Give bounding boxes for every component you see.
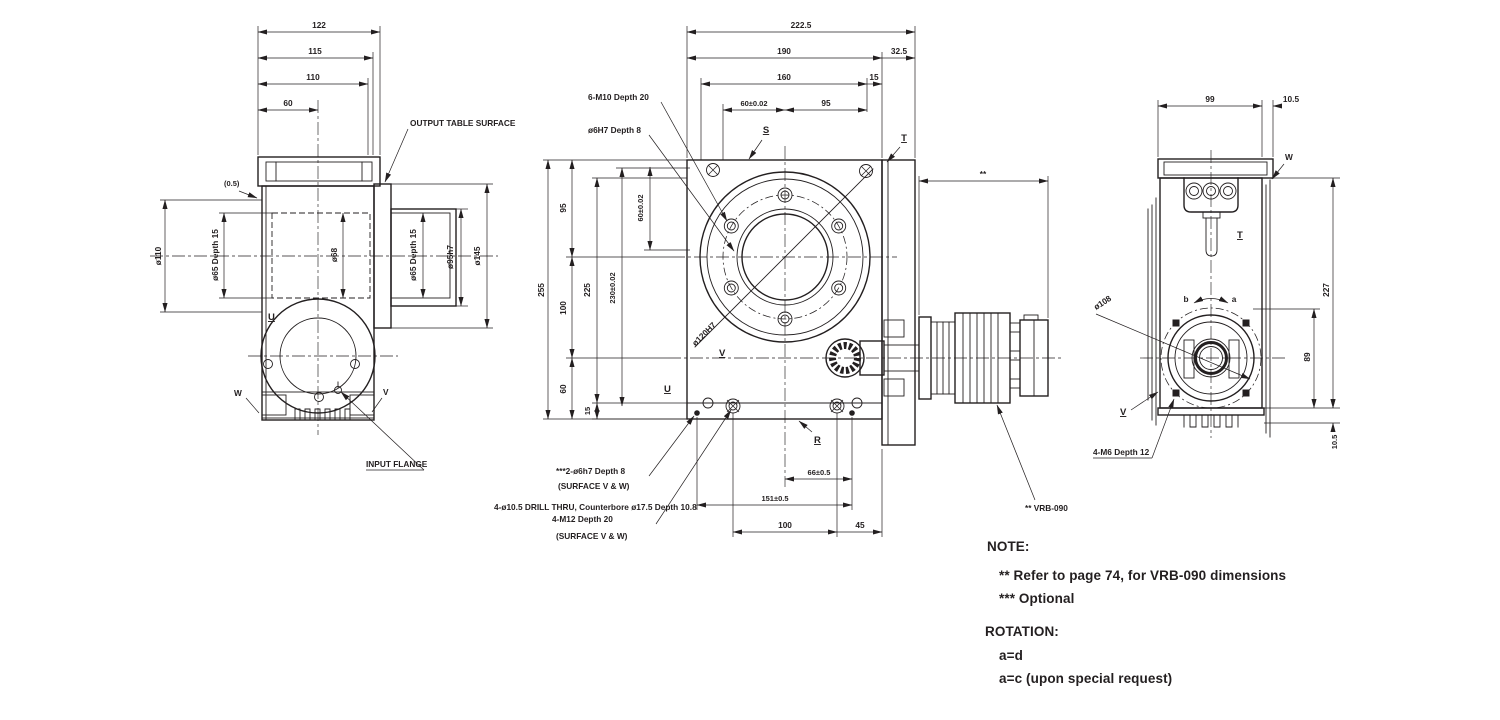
surface-label-v: V <box>1120 407 1127 418</box>
dim-d65-depth15-left: ø65 Depth 15 <box>210 229 220 281</box>
rotation-title: ROTATION: <box>985 624 1059 639</box>
left-view: 122 115 110 60 (0.5) ø110 ø65 Depth 15 ø… <box>150 20 516 470</box>
dim-160: 160 <box>777 72 791 82</box>
surface-label-s: S <box>763 125 769 136</box>
callout-6-m10: 6-M10 Depth 20 <box>588 92 649 102</box>
surface-label-t: T <box>1237 230 1243 241</box>
dim-225: 225 <box>582 283 592 297</box>
bore-label-d120h7: ø120H7 <box>690 320 718 348</box>
dim-89: 89 <box>1302 352 1312 362</box>
notes-block: NOTE: ** Refer to page 74, for VRB-090 d… <box>985 539 1286 686</box>
left-view-body <box>258 157 456 420</box>
rotation-standard: a=d <box>999 648 1023 663</box>
dim-15-top: 15 <box>869 72 879 82</box>
right-view-centerlines <box>1140 150 1285 438</box>
surface-label-u: U <box>664 384 671 395</box>
dim-d145: ø145 <box>472 246 482 265</box>
callout-m12-surface: (SURFACE V & W) <box>556 531 628 541</box>
dim-255: 255 <box>536 283 546 297</box>
dim-60: 60 <box>283 98 293 108</box>
callout-vrb: ** VRB-090 <box>1025 503 1068 513</box>
surface-label-r: R <box>814 435 821 446</box>
dim-d110: ø110 <box>153 246 163 265</box>
note-title: NOTE: <box>987 539 1030 554</box>
rotation-label-b: b <box>1183 294 1188 304</box>
dim-227: 227 <box>1321 283 1331 297</box>
front-view-centerlines <box>668 146 1062 487</box>
dim-60-tol-v: 60±0.02 <box>636 194 645 221</box>
dim-66-tol: 66±0.5 <box>808 468 831 477</box>
surface-label-w: W <box>1285 152 1293 162</box>
left-view-dimensions: 122 115 110 60 (0.5) ø110 ø65 Depth 15 ø… <box>153 20 493 328</box>
right-view-body <box>1148 159 1273 437</box>
dim-45: 45 <box>855 520 865 530</box>
dim-99: 99 <box>1205 94 1215 104</box>
dim-d65-depth15-right: ø65 Depth 15 <box>408 229 418 281</box>
drawing-page: 122 115 110 60 (0.5) ø110 ø65 Depth 15 ø… <box>0 0 1500 720</box>
dim-230-tol: 230±0.02 <box>608 272 617 303</box>
dim-60-tol: 60±0.02 <box>740 99 767 108</box>
front-view-body <box>687 160 1048 445</box>
dim-32-5: 32.5 <box>891 46 908 56</box>
callout-4-m6: 4-M6 Depth 12 <box>1093 447 1150 457</box>
callout-m12: 4-M12 Depth 20 <box>552 514 613 524</box>
dim-95-left: 95 <box>558 203 568 213</box>
dim-100-left: 100 <box>558 301 568 315</box>
dim-15-left: 15 <box>583 407 592 415</box>
surface-label-v: V <box>383 387 389 397</box>
callout-dowel: ***2-ø6h7 Depth 8 <box>556 466 626 476</box>
dim-110: 110 <box>306 72 320 82</box>
dim-d68: ø68 <box>329 247 339 262</box>
dim-60-left: 60 <box>558 384 568 394</box>
dim-gap: (0.5) <box>224 179 240 188</box>
dim-d95h7: ø95h7 <box>445 245 455 269</box>
dim-100-bottom: 100 <box>778 520 792 530</box>
dim-10-5-top: 10.5 <box>1283 94 1300 104</box>
rotation-special: a=c (upon special request) <box>999 671 1172 686</box>
technical-drawing-canvas: 122 115 110 60 (0.5) ø110 ø65 Depth 15 ø… <box>0 0 1500 720</box>
right-view: 99 10.5 227 89 10.5 W T b a ø108 V <box>1092 94 1340 458</box>
right-view-labels: W T b a ø108 V 4-M6 Depth 12 <box>1092 152 1293 458</box>
output-table-surface-label: OUTPUT TABLE SURFACE <box>410 118 516 128</box>
dim-star: ** <box>980 169 987 179</box>
note-optional: *** Optional <box>999 591 1074 606</box>
dim-115: 115 <box>308 46 322 56</box>
input-flange-label: INPUT FLANGE <box>366 459 428 469</box>
dim-190: 190 <box>777 46 791 56</box>
front-view: 222.5 190 32.5 160 15 60±0.02 95 255 95 … <box>494 20 1068 541</box>
rotation-label-a: a <box>1232 294 1237 304</box>
surface-label-u: U <box>268 312 275 323</box>
surface-label-w: W <box>234 388 242 398</box>
dim-95-top: 95 <box>821 98 831 108</box>
dim-10-5-bottom: 10.5 <box>1330 435 1339 450</box>
note-vrb-dimensions: ** Refer to page 74, for VRB-090 dimensi… <box>999 568 1286 583</box>
dim-122: 122 <box>312 20 326 30</box>
callout-d6h7: ø6H7 Depth 8 <box>588 125 641 135</box>
surface-label-v: V <box>719 348 726 359</box>
callout-dowel-surface: (SURFACE V & W) <box>558 481 630 491</box>
dim-151-tol: 151±0.5 <box>761 494 788 503</box>
dim-222-5: 222.5 <box>791 20 812 30</box>
dim-d108: ø108 <box>1092 293 1114 312</box>
callout-drill: 4-ø10.5 DRILL THRU, Counterbore ø17.5 De… <box>494 502 697 512</box>
surface-label-t: T <box>901 133 907 144</box>
